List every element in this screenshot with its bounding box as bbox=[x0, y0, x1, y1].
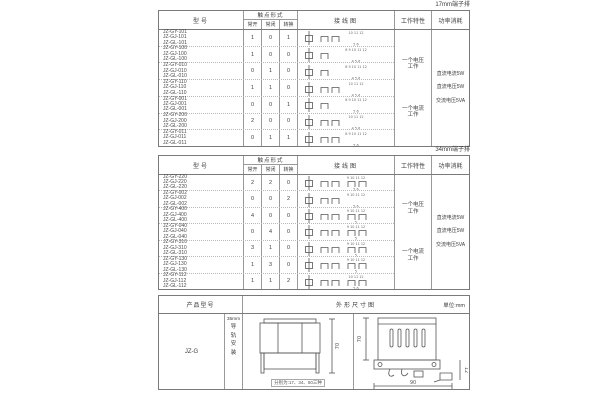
nc-count-cell: 3 bbox=[262, 257, 280, 272]
power-label: 交流电压5VA bbox=[432, 99, 469, 105]
wiring-diagram: 10 11 125 6 bbox=[299, 29, 394, 46]
terminal-numbers-top: 8 9 10 11 12 bbox=[345, 98, 367, 102]
contact-symbol bbox=[321, 231, 328, 237]
table-header: 型号触点形式常开常闭转换接线图工作特性功率消耗 bbox=[159, 11, 469, 30]
header-wiring-diagram: 接线图 bbox=[298, 11, 395, 29]
dimension-table-body: JZ-G 35mm 导轨安装 70 bbox=[159, 314, 469, 389]
model-cell: JZ-GY-010JZ-GJ-010JZ-GL-010 bbox=[159, 63, 244, 79]
diagram-cell: 9 10 11 125 6 bbox=[298, 175, 394, 190]
terminal-label-17mm: 17mm端子排 bbox=[158, 2, 470, 9]
no-count-cell: 1 bbox=[244, 257, 262, 272]
table-body: JZ-GY-101JZ-GJ-101JZ-GL-10110110 11 125 … bbox=[159, 30, 469, 146]
diagram-cell: 9 10 11 125 bbox=[298, 257, 394, 272]
terminal-numbers-top: 9 10 11 12 bbox=[346, 209, 364, 213]
datasheet-page: 17mm端子排 型号触点形式常开常闭转换接线图工作特性功率消耗JZ-GY-101… bbox=[0, 0, 600, 400]
header-product-model: 产品型号 bbox=[159, 296, 243, 313]
model-cell: JZ-GY-112JZ-GJ-112JZ-GL-112 bbox=[159, 274, 244, 289]
header-contact-form: 触点形式 bbox=[244, 11, 297, 20]
co-count-cell: 2 bbox=[280, 191, 298, 206]
contact-symbol bbox=[321, 247, 328, 253]
rail-latch bbox=[414, 371, 423, 377]
model-cell: JZ-GY-101JZ-GJ-101JZ-GL-101 bbox=[159, 30, 244, 46]
terminal-numbers-top: 8 9 10 11 12 bbox=[345, 48, 367, 52]
vent-slot bbox=[406, 329, 409, 347]
co-count-cell: 0 bbox=[280, 80, 298, 96]
table-row: JZ-GY-130JZ-GJ-130JZ-GL-1301309 10 11 12… bbox=[159, 256, 394, 272]
table-row: JZ-GY-220JZ-GJ-220JZ-GL-2202209 10 11 12… bbox=[159, 175, 394, 190]
table-row: JZ-GY-310JZ-GJ-310JZ-GL-3103109 10 11 12… bbox=[159, 240, 394, 256]
model-line: JZ-GL-112 bbox=[163, 284, 187, 289]
side-width-dimension: 90 bbox=[409, 380, 415, 386]
relay-body bbox=[260, 323, 320, 353]
co-count-cell: 1 bbox=[280, 97, 298, 113]
table-row: JZ-GY-112JZ-GJ-112JZ-GL-11211210 11 125 … bbox=[159, 273, 394, 289]
contact-symbol bbox=[348, 215, 355, 221]
model-cell: JZ-GY-100JZ-GJ-100JZ-GL-100 bbox=[159, 47, 244, 63]
header-outline-label: 外形尺寸图 bbox=[336, 300, 376, 309]
contact-symbol bbox=[321, 264, 328, 270]
table-header: 型号触点形式常开常闭转换接线图工作特性功率消耗 bbox=[159, 156, 469, 175]
table-row: JZ-GY-011JZ-GJ-011JZ-GL-0110118 9 10 11 … bbox=[159, 129, 394, 146]
header-changeover: 转换 bbox=[280, 165, 297, 174]
header-contact-subrow: 常开常闭转换 bbox=[244, 20, 297, 29]
clamp-screw bbox=[378, 362, 382, 366]
table-row: JZ-GY-100JZ-GJ-100JZ-GL-1001008 9 10 11 … bbox=[159, 46, 394, 63]
terminal-numbers-bottom: 5 6 bbox=[353, 286, 358, 290]
rail-mount-vertical-label: 导轨安装 bbox=[231, 323, 237, 357]
nc-count-cell: 1 bbox=[262, 130, 280, 146]
front-view-drawing: 70 bbox=[248, 316, 348, 378]
header-model: 型号 bbox=[159, 11, 244, 29]
no-count-cell: 3 bbox=[244, 241, 262, 256]
nc-count-cell: 1 bbox=[262, 80, 280, 96]
no-count-cell: 0 bbox=[244, 63, 262, 79]
table-row: JZ-GY-010JZ-GJ-010JZ-GL-0100108 9 10 11 … bbox=[159, 62, 394, 79]
header-outline-drawing: 外形尺寸图 单位:mm bbox=[243, 296, 469, 313]
nc-count-cell: 4 bbox=[262, 224, 280, 239]
contact-symbol bbox=[321, 54, 328, 60]
wiring-diagram: 10 11 125 6 bbox=[299, 273, 394, 290]
co-count-cell: 1 bbox=[280, 130, 298, 146]
dimension-table-header: 产品型号 外形尺寸图 单位:mm bbox=[159, 296, 469, 314]
diagram-cell: 10 11 125 6 bbox=[298, 274, 394, 289]
table-row: JZ-GY-001JZ-GJ-001JZ-GL-0010018 9 10 11 … bbox=[159, 96, 394, 113]
contact-symbol bbox=[332, 137, 339, 143]
diagram-cell: 8 9 10 11 124 5 6 bbox=[298, 63, 394, 79]
dimension-table: 产品型号 外形尺寸图 单位:mm JZ-G 35mm 导轨安装 bbox=[158, 295, 470, 390]
model-cell: JZ-GY-040JZ-GJ-040JZ-GL-040 bbox=[159, 224, 244, 239]
side-view-cell: 70 90 12 bbox=[354, 314, 469, 389]
relay-leg bbox=[261, 353, 264, 373]
no-count-cell: 0 bbox=[244, 224, 262, 239]
nc-count-cell: 1 bbox=[262, 241, 280, 256]
contact-symbol bbox=[321, 215, 328, 221]
header-normally-open: 常开 bbox=[244, 20, 262, 29]
header-contact-subrow: 常开常闭转换 bbox=[244, 165, 297, 174]
contact-symbol bbox=[321, 280, 328, 286]
wiring-diagram: 9 10 11 125 bbox=[299, 223, 394, 240]
power-label: 直流电流5W bbox=[432, 216, 469, 222]
header-normally-open: 常开 bbox=[244, 165, 262, 174]
table-rows: JZ-GY-101JZ-GJ-101JZ-GL-10110110 11 125 … bbox=[159, 30, 395, 146]
model-cell: JZ-GY-220JZ-GJ-220JZ-GL-220 bbox=[159, 175, 244, 190]
contact-symbol bbox=[359, 231, 366, 237]
diagram-cell: 8 9 10 11 125 6 bbox=[298, 97, 394, 113]
contact-symbol bbox=[321, 182, 328, 188]
rail-spring bbox=[388, 369, 407, 376]
contact-symbol bbox=[359, 247, 366, 253]
depth-variants-caption: 分别为:17、34、60三种 bbox=[271, 379, 325, 387]
nc-count-cell: 0 bbox=[262, 191, 280, 206]
diagram-cell: 9 10 11 125 6 bbox=[298, 191, 394, 206]
relay-leg bbox=[316, 353, 319, 373]
terminal-numbers-top: 9 10 11 12 bbox=[346, 176, 364, 180]
no-count-cell: 1 bbox=[244, 47, 262, 63]
side-height-dimension: 70 bbox=[357, 335, 363, 341]
diagram-cell: 9 10 11 125 bbox=[298, 224, 394, 239]
model-cell: JZ-GY-011JZ-GJ-011JZ-GL-011 bbox=[159, 130, 244, 146]
relay-base bbox=[264, 353, 316, 369]
wiring-diagram: 9 10 11 125 6 bbox=[299, 174, 394, 191]
contact-symbol bbox=[332, 182, 339, 188]
model-cell: JZ-GY-130JZ-GJ-130JZ-GL-130 bbox=[159, 257, 244, 272]
diagram-cell: 9 10 11 125 bbox=[298, 241, 394, 256]
co-count-cell: 1 bbox=[280, 30, 298, 46]
contact-symbol bbox=[321, 104, 328, 110]
mounting-cell: 35mm 导轨安装 bbox=[225, 314, 243, 389]
contact-symbol bbox=[332, 120, 339, 126]
spec-table-34mm: 型号触点形式常开常闭转换接线图工作特性功率消耗JZ-GY-220JZ-GJ-22… bbox=[158, 155, 470, 290]
rail-dimension: 12 bbox=[463, 366, 468, 372]
nc-count-cell: 1 bbox=[262, 63, 280, 79]
vent-slot bbox=[390, 329, 393, 347]
header-wiring-diagram: 接线图 bbox=[298, 156, 395, 174]
no-count-cell: 1 bbox=[244, 30, 262, 46]
header-model: 型号 bbox=[159, 156, 244, 174]
table-row: JZ-GY-200JZ-GJ-200JZ-GL-20020010 11 124 … bbox=[159, 113, 394, 130]
side-view-drawing: 70 90 12 bbox=[356, 315, 468, 389]
wiring-diagram: 9 10 11 125 bbox=[299, 240, 394, 257]
table-row: JZ-GY-002JZ-GJ-002JZ-GL-0020029 10 11 12… bbox=[159, 190, 394, 206]
contact-symbol bbox=[332, 37, 339, 43]
spec-table-17mm: 型号触点形式常开常闭转换接线图工作特性功率消耗JZ-GY-101JZ-GJ-10… bbox=[158, 10, 470, 147]
no-count-cell: 1 bbox=[244, 80, 262, 96]
contact-symbol bbox=[348, 182, 355, 188]
clamp-bar bbox=[374, 360, 440, 369]
header-work-characteristic: 工作特性 bbox=[395, 11, 432, 29]
contact-symbol bbox=[332, 264, 339, 270]
work-characteristic-column: 一个电压工作一个电流工作 bbox=[395, 175, 432, 289]
co-count-cell: 0 bbox=[280, 47, 298, 63]
contact-symbol bbox=[332, 198, 339, 204]
vent-slot bbox=[398, 329, 401, 347]
product-model-value: JZ-G bbox=[159, 314, 225, 389]
nc-count-cell: 2 bbox=[262, 175, 280, 190]
terminal-numbers-top: 8 9 10 11 12 bbox=[345, 65, 367, 69]
no-count-cell: 0 bbox=[244, 97, 262, 113]
terminal-numbers-top: 10 11 12 bbox=[348, 31, 363, 35]
power-consumption-column: 直流电流5W直流电压5W交流电压5VA bbox=[432, 175, 469, 289]
contact-symbol bbox=[321, 120, 328, 126]
table-row: JZ-GY-040JZ-GJ-040JZ-GL-0400409 10 11 12… bbox=[159, 223, 394, 239]
vent-slot bbox=[414, 329, 417, 347]
header-power-consumption: 功率消耗 bbox=[432, 156, 469, 174]
header-contact-form: 触点形式 bbox=[244, 156, 297, 165]
rail-clip bbox=[434, 373, 452, 382]
model-cell: JZ-GY-001JZ-GJ-001JZ-GL-001 bbox=[159, 97, 244, 113]
no-count-cell: 2 bbox=[244, 175, 262, 190]
contact-symbol bbox=[321, 198, 328, 204]
co-count-cell: 0 bbox=[280, 208, 298, 223]
nc-count-cell: 0 bbox=[262, 97, 280, 113]
header-power-consumption: 功率消耗 bbox=[432, 11, 469, 29]
nc-count-cell: 0 bbox=[262, 47, 280, 63]
co-count-cell: 0 bbox=[280, 241, 298, 256]
wiring-diagram: 9 10 11 125 bbox=[299, 256, 394, 273]
terminal-numbers-top: 8 9 10 11 12 bbox=[345, 132, 367, 136]
wiring-diagram: 8 9 10 11 125 6 bbox=[299, 130, 394, 147]
contact-symbol bbox=[348, 247, 355, 253]
contact-symbol bbox=[332, 280, 339, 286]
contact-symbol bbox=[348, 231, 355, 237]
diagram-cell: 9 10 11 125 bbox=[298, 208, 394, 223]
no-count-cell: 1 bbox=[244, 274, 262, 289]
vent-slot bbox=[422, 329, 425, 347]
power-consumption-column: 直流电流5W直流电压5W交流电压5VA bbox=[432, 30, 469, 146]
nc-count-cell: 1 bbox=[262, 274, 280, 289]
clamp-screw bbox=[432, 362, 436, 366]
model-cell: JZ-GY-400JZ-GJ-400JZ-GL-400 bbox=[159, 208, 244, 223]
wiring-diagram: 8 9 10 11 124 5 6 bbox=[299, 46, 394, 63]
wiring-diagram: 8 9 10 11 125 6 bbox=[299, 96, 394, 113]
contact-symbol bbox=[359, 182, 366, 188]
no-count-cell: 4 bbox=[244, 208, 262, 223]
diagram-cell: 10 11 125 6 bbox=[298, 30, 394, 46]
co-count-cell: 0 bbox=[280, 114, 298, 130]
work-characteristic-column: 一个电压工作一个电流工作 bbox=[395, 30, 432, 146]
wiring-diagram: 9 10 11 125 6 bbox=[299, 191, 394, 208]
contact-symbol bbox=[321, 87, 328, 93]
table-row: JZ-GY-110JZ-GJ-110JZ-GL-11011010 11 124 … bbox=[159, 79, 394, 96]
wiring-diagram: 10 11 124 5 6 bbox=[299, 80, 394, 97]
power-label: 直流电压5W bbox=[432, 85, 469, 91]
contact-symbol bbox=[332, 231, 339, 237]
power-label: 交流电压5VA bbox=[432, 243, 469, 249]
table-rows: JZ-GY-220JZ-GJ-220JZ-GL-2202209 10 11 12… bbox=[159, 175, 395, 289]
nc-count-cell: 0 bbox=[262, 30, 280, 46]
front-height-dimension: 70 bbox=[335, 343, 341, 349]
rail-mount-char: 轨 bbox=[231, 332, 237, 341]
header-normally-closed: 常闭 bbox=[262, 20, 280, 29]
contact-symbol bbox=[359, 215, 366, 221]
diagram-cell: 8 9 10 11 125 6 bbox=[298, 130, 394, 146]
table-row: JZ-GY-101JZ-GJ-101JZ-GL-10110110 11 125 … bbox=[159, 30, 394, 46]
table-body: JZ-GY-220JZ-GJ-220JZ-GL-2202209 10 11 12… bbox=[159, 175, 469, 289]
terminal-numbers-top: 9 10 11 12 bbox=[346, 225, 364, 229]
wiring-diagram: 8 9 10 11 124 5 6 bbox=[299, 63, 394, 80]
model-line: JZ-GL-011 bbox=[163, 141, 187, 146]
work-label: 一个电压工作 bbox=[402, 202, 424, 214]
nc-count-cell: 0 bbox=[262, 114, 280, 130]
rail-mount-char: 安 bbox=[231, 340, 237, 349]
work-label: 一个电流工作 bbox=[402, 249, 424, 261]
unit-label: 单位:mm bbox=[443, 301, 465, 309]
contact-symbol bbox=[359, 264, 366, 270]
power-label: 直流电压5W bbox=[432, 229, 469, 235]
diagram-cell: 10 11 124 5 6 bbox=[298, 80, 394, 96]
model-cell: JZ-GY-200JZ-GJ-200JZ-GL-200 bbox=[159, 114, 244, 130]
co-count-cell: 2 bbox=[280, 274, 298, 289]
work-label: 一个电流工作 bbox=[402, 106, 424, 118]
header-changeover: 转换 bbox=[280, 20, 297, 29]
model-cell: JZ-GY-310JZ-GJ-310JZ-GL-310 bbox=[159, 241, 244, 256]
contact-symbol bbox=[348, 264, 355, 270]
contact-symbol bbox=[332, 87, 339, 93]
diagram-cell: 10 11 124 5 6 bbox=[298, 114, 394, 130]
contact-symbol bbox=[332, 247, 339, 253]
front-view-cell: 70 分别为:17、34、60三种 bbox=[243, 314, 354, 389]
header-work-characteristic: 工作特性 bbox=[395, 156, 432, 174]
no-count-cell: 0 bbox=[244, 191, 262, 206]
no-count-cell: 0 bbox=[244, 130, 262, 146]
no-count-cell: 2 bbox=[244, 114, 262, 130]
co-count-cell: 0 bbox=[280, 63, 298, 79]
terminal-label-34mm: 34mm端子排 bbox=[158, 147, 470, 154]
header-normally-closed: 常闭 bbox=[262, 165, 280, 174]
contact-symbol bbox=[348, 280, 355, 286]
terminal-numbers-top: 9 10 11 12 bbox=[346, 242, 364, 246]
diagram-cell: 8 9 10 11 124 5 6 bbox=[298, 47, 394, 63]
contact-symbol bbox=[332, 215, 339, 221]
contact-symbol bbox=[321, 37, 328, 43]
terminal-numbers-top: 10 11 12 bbox=[348, 275, 363, 279]
wiring-diagram: 10 11 124 5 6 bbox=[299, 113, 394, 130]
contact-symbol bbox=[321, 70, 328, 76]
co-count-cell: 0 bbox=[280, 224, 298, 239]
contact-symbol bbox=[321, 137, 328, 143]
co-count-cell: 0 bbox=[280, 257, 298, 272]
wiring-diagram: 9 10 11 125 bbox=[299, 207, 394, 224]
rail-mount-char: 装 bbox=[231, 349, 237, 358]
power-label: 直流电流5W bbox=[432, 72, 469, 78]
terminal-numbers-top: 10 11 12 bbox=[348, 82, 363, 86]
nc-count-cell: 0 bbox=[262, 208, 280, 223]
header-contact-form-group: 触点形式常开常闭转换 bbox=[244, 156, 298, 174]
model-cell: JZ-GY-002JZ-GJ-002JZ-GL-002 bbox=[159, 191, 244, 206]
terminal-numbers-top: 10 11 12 bbox=[348, 115, 363, 119]
terminal-numbers-top: 9 10 11 12 bbox=[346, 193, 364, 197]
table-row: JZ-GY-400JZ-GJ-400JZ-GL-4004009 10 11 12… bbox=[159, 207, 394, 223]
header-contact-form-group: 触点形式常开常闭转换 bbox=[244, 11, 298, 29]
rail-mount-char: 导 bbox=[231, 323, 237, 332]
terminal-numbers-top: 9 10 11 12 bbox=[346, 258, 364, 262]
model-cell: JZ-GY-110JZ-GJ-110JZ-GL-110 bbox=[159, 80, 244, 96]
relay-top-lip bbox=[264, 319, 316, 323]
co-count-cell: 0 bbox=[280, 175, 298, 190]
contact-symbol bbox=[359, 280, 366, 286]
work-label: 一个电压工作 bbox=[402, 58, 424, 70]
